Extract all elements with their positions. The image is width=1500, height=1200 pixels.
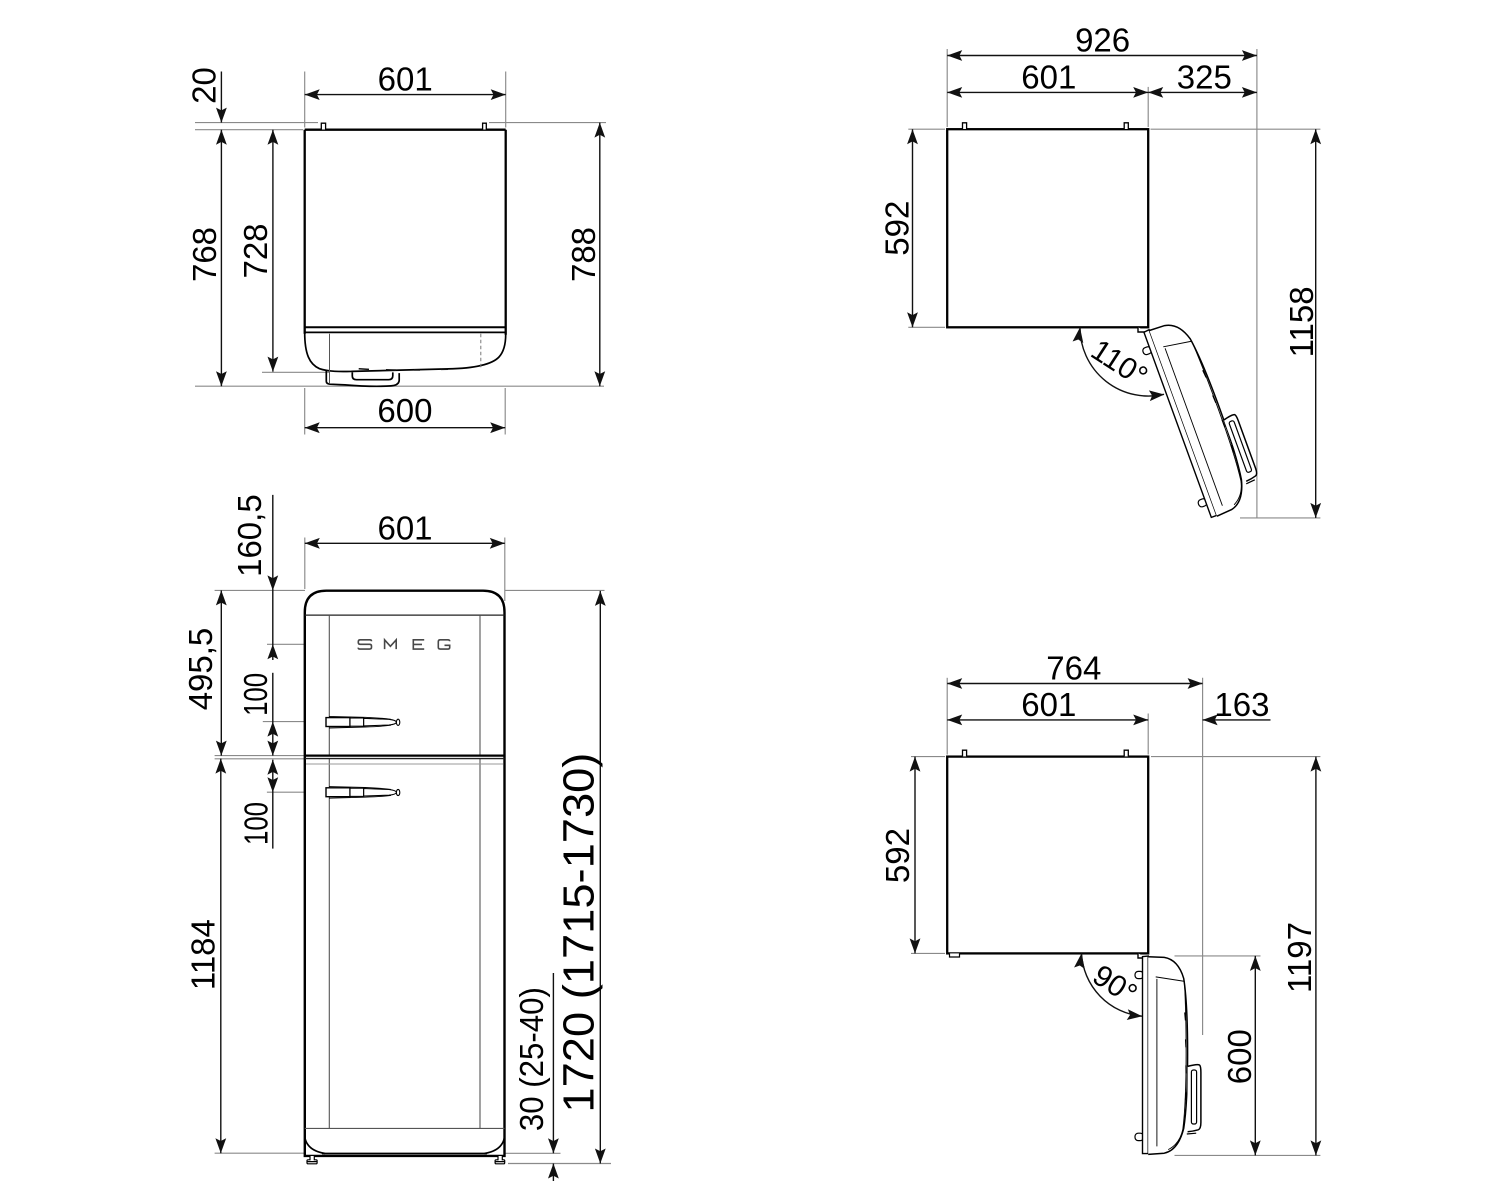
svg-text:601: 601 bbox=[378, 61, 433, 98]
svg-text:601: 601 bbox=[1021, 59, 1076, 96]
svg-text:100: 100 bbox=[238, 802, 275, 845]
svg-text:788: 788 bbox=[565, 227, 602, 282]
svg-text:1720 (1715-1730): 1720 (1715-1730) bbox=[555, 753, 604, 1113]
svg-text:100: 100 bbox=[237, 673, 274, 716]
svg-text:1158: 1158 bbox=[1283, 286, 1320, 357]
svg-text:600: 600 bbox=[1221, 1029, 1258, 1084]
svg-text:1197: 1197 bbox=[1281, 922, 1318, 993]
svg-text:30 (25-40): 30 (25-40) bbox=[513, 987, 550, 1131]
svg-text:728: 728 bbox=[237, 223, 274, 278]
svg-text:764: 764 bbox=[1046, 650, 1101, 687]
svg-text:600: 600 bbox=[377, 392, 432, 429]
svg-text:163: 163 bbox=[1214, 686, 1269, 723]
svg-text:926: 926 bbox=[1075, 22, 1130, 59]
svg-text:325: 325 bbox=[1177, 59, 1232, 96]
svg-text:495,5: 495,5 bbox=[182, 628, 219, 711]
svg-text:768: 768 bbox=[186, 227, 223, 282]
svg-text:20: 20 bbox=[186, 67, 223, 104]
svg-text:601: 601 bbox=[377, 509, 432, 546]
svg-text:160,5: 160,5 bbox=[231, 494, 268, 577]
svg-text:1184: 1184 bbox=[185, 919, 222, 990]
svg-text:592: 592 bbox=[879, 828, 916, 883]
svg-text:592: 592 bbox=[879, 201, 916, 256]
svg-text:601: 601 bbox=[1021, 686, 1076, 723]
